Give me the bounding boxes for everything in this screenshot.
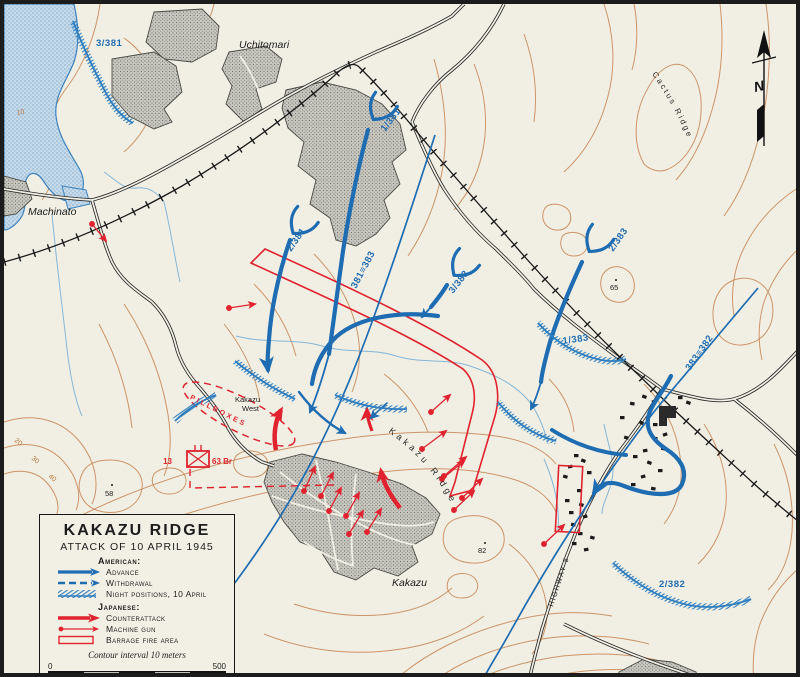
contour-label-10: 10 — [16, 109, 25, 117]
legend-label-barrage: Barrage fire area — [106, 635, 179, 645]
unit-label-2-383: 2/383 — [606, 226, 630, 254]
legend-label-withdrawal: Withdrawal — [106, 578, 153, 588]
legend-row-advance: Advance — [40, 567, 234, 577]
unit-label-3-381: 3/381 — [96, 38, 122, 49]
legend-label-night-positions: Night positions, 10 April — [106, 589, 207, 599]
night-positions-icon — [56, 589, 102, 599]
legend-header-japanese: Japanese: — [98, 602, 234, 612]
highway-label: HIGHWAY 5 — [548, 556, 571, 608]
unit-label-2-382: 2/382 — [659, 579, 685, 590]
japan-unit-brigade: 63 Br — [212, 457, 232, 466]
legend-label-advance: Advance — [106, 567, 139, 577]
legend-row-withdrawal: Withdrawal — [40, 578, 234, 588]
contour-interval-note: Contour interval 10 meters — [40, 650, 234, 660]
elevation-58: 58 — [105, 489, 113, 498]
counterattack-arrow-icon — [56, 613, 102, 623]
elevation-82: 82 — [478, 546, 486, 555]
legend-header-american: American: — [98, 556, 234, 566]
machine-gun-icon — [56, 624, 102, 634]
contour-label-40: 40 — [47, 473, 58, 483]
legend-label-counterattack: Counterattack — [106, 613, 165, 623]
boundary-label-381-383: 381≡383 — [349, 249, 378, 290]
place-label-kakazu: Kakazu — [392, 577, 427, 589]
place-label-kakazu-west-1: Kakazu — [235, 395, 260, 404]
place-label-cactus-ridge: Cactus Ridge — [650, 70, 694, 140]
legend-row-machine-gun: Machine gun — [40, 624, 234, 634]
legend-row-night-positions: Night positions, 10 April — [40, 589, 234, 599]
legend-label-machine-gun: Machine gun — [106, 624, 156, 634]
legend-box: KAKAZU RIDGE ATTACK OF 10 APRIL 1945 Ame… — [39, 514, 235, 676]
contour-label-20: 20 — [13, 437, 24, 447]
elevation-65: 65 — [610, 283, 618, 292]
place-label-uchitomari: Uchitomari — [239, 39, 290, 51]
place-label-machinato: Machinato — [28, 206, 77, 218]
withdrawal-arrow-icon — [56, 578, 102, 588]
legend-row-barrage: Barrage fire area — [40, 635, 234, 645]
contour-label-30: 30 — [30, 455, 41, 465]
scale-bar-segments — [48, 671, 226, 677]
scale-start: 0 — [48, 662, 52, 671]
barrage-area-icon — [56, 635, 102, 645]
scale-bar: 0 500 YARDS — [48, 662, 226, 677]
unit-label-1-383: 1/383 — [562, 332, 590, 347]
legend-row-counterattack: Counterattack — [40, 613, 234, 623]
scale-end: 500 — [213, 662, 226, 671]
unit-boundaries — [226, 135, 758, 677]
map-title: KAKAZU RIDGE — [40, 522, 234, 540]
north-arrow: N — [752, 30, 776, 146]
map-page: 3/381 1/381 2/381 381≡383 3/383 2/383 1/… — [0, 0, 800, 677]
map-subtitle: ATTACK OF 10 APRIL 1945 — [40, 541, 234, 553]
place-label-kakazu-west-2: West — [242, 404, 260, 413]
japan-unit-number: 13 — [163, 457, 172, 466]
boundary-label-383-382: 383≡382 — [683, 333, 715, 373]
advance-arrow-icon — [56, 567, 102, 577]
unit-label-3-383: 3/383 — [447, 268, 472, 295]
